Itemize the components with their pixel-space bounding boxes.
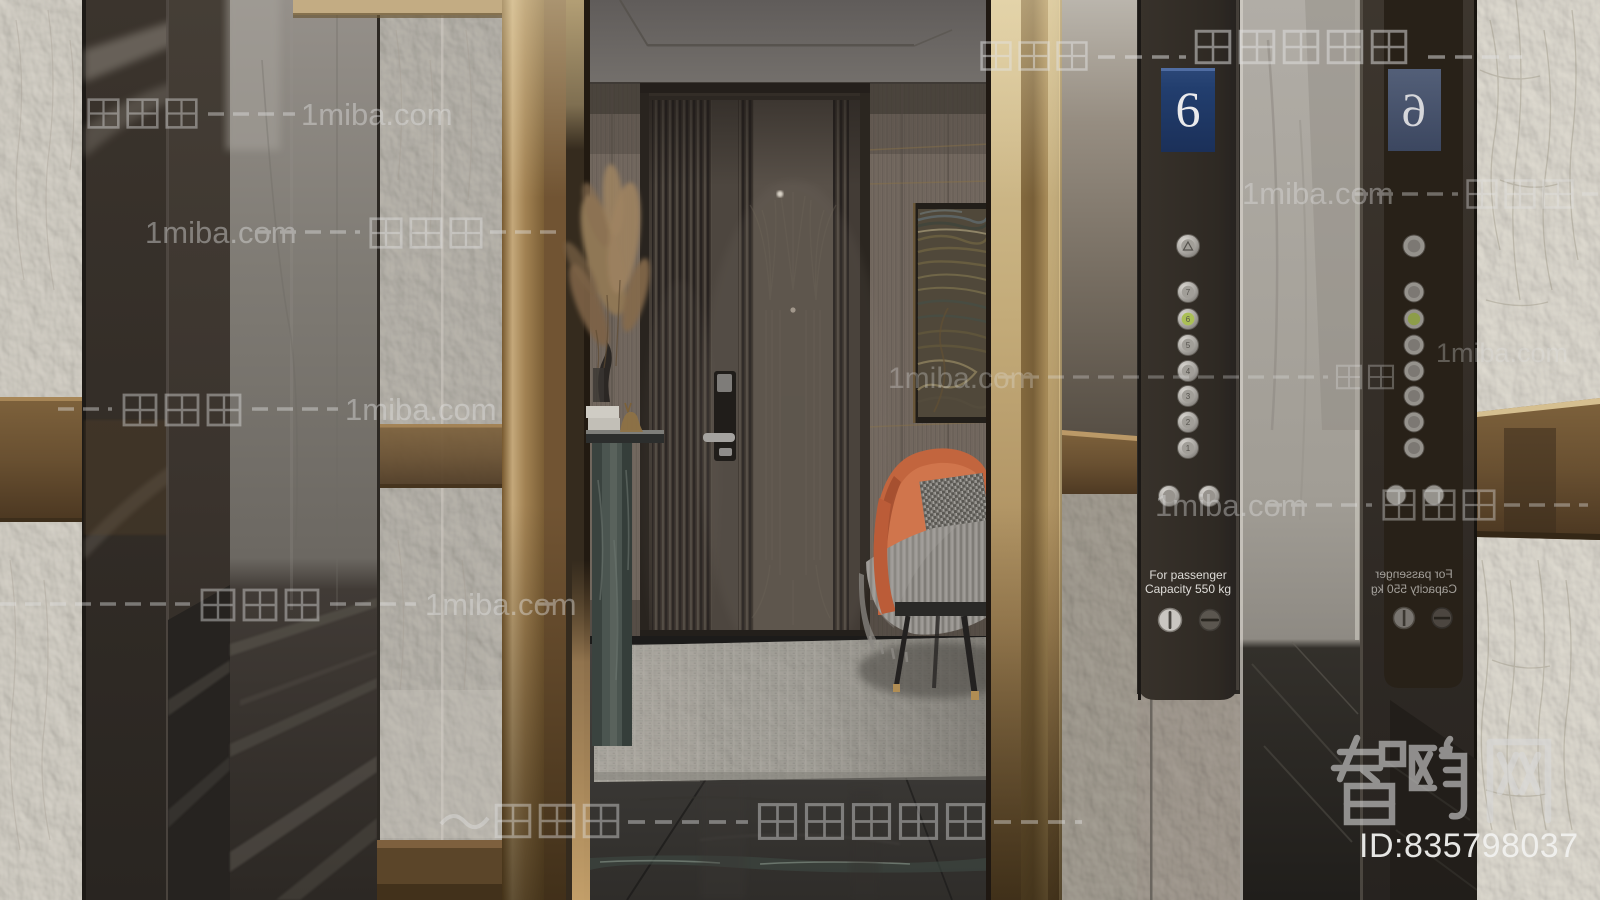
- svg-text:6: 6: [1186, 315, 1191, 324]
- svg-text:1miba.com: 1miba.com: [1242, 176, 1394, 211]
- svg-text:3: 3: [1186, 392, 1191, 401]
- svg-text:ID:835798037: ID:835798037: [1359, 827, 1579, 865]
- svg-text:For passenger: For passenger: [1149, 568, 1226, 582]
- svg-text:2: 2: [1186, 418, 1191, 427]
- svg-text:1: 1: [1186, 444, 1191, 453]
- svg-text:1miba.com: 1miba.com: [1155, 488, 1307, 523]
- svg-text:4: 4: [1186, 367, 1191, 376]
- svg-text:1miba.com: 1miba.com: [345, 392, 497, 427]
- svg-text:6: 6: [1176, 81, 1201, 137]
- svg-text:1miba.com: 1miba.com: [145, 215, 297, 250]
- svg-text:6: 6: [1402, 84, 1426, 137]
- svg-text:For passenger: For passenger: [1375, 567, 1452, 581]
- svg-text:1miba.com: 1miba.com: [1436, 338, 1568, 368]
- svg-text:Capacity 550 kg: Capacity 550 kg: [1145, 582, 1231, 596]
- svg-text:1miba.com: 1miba.com: [301, 97, 453, 132]
- svg-text:5: 5: [1186, 341, 1191, 350]
- svg-text:7: 7: [1186, 288, 1191, 297]
- svg-text:Capacity 550 kg: Capacity 550 kg: [1371, 582, 1457, 596]
